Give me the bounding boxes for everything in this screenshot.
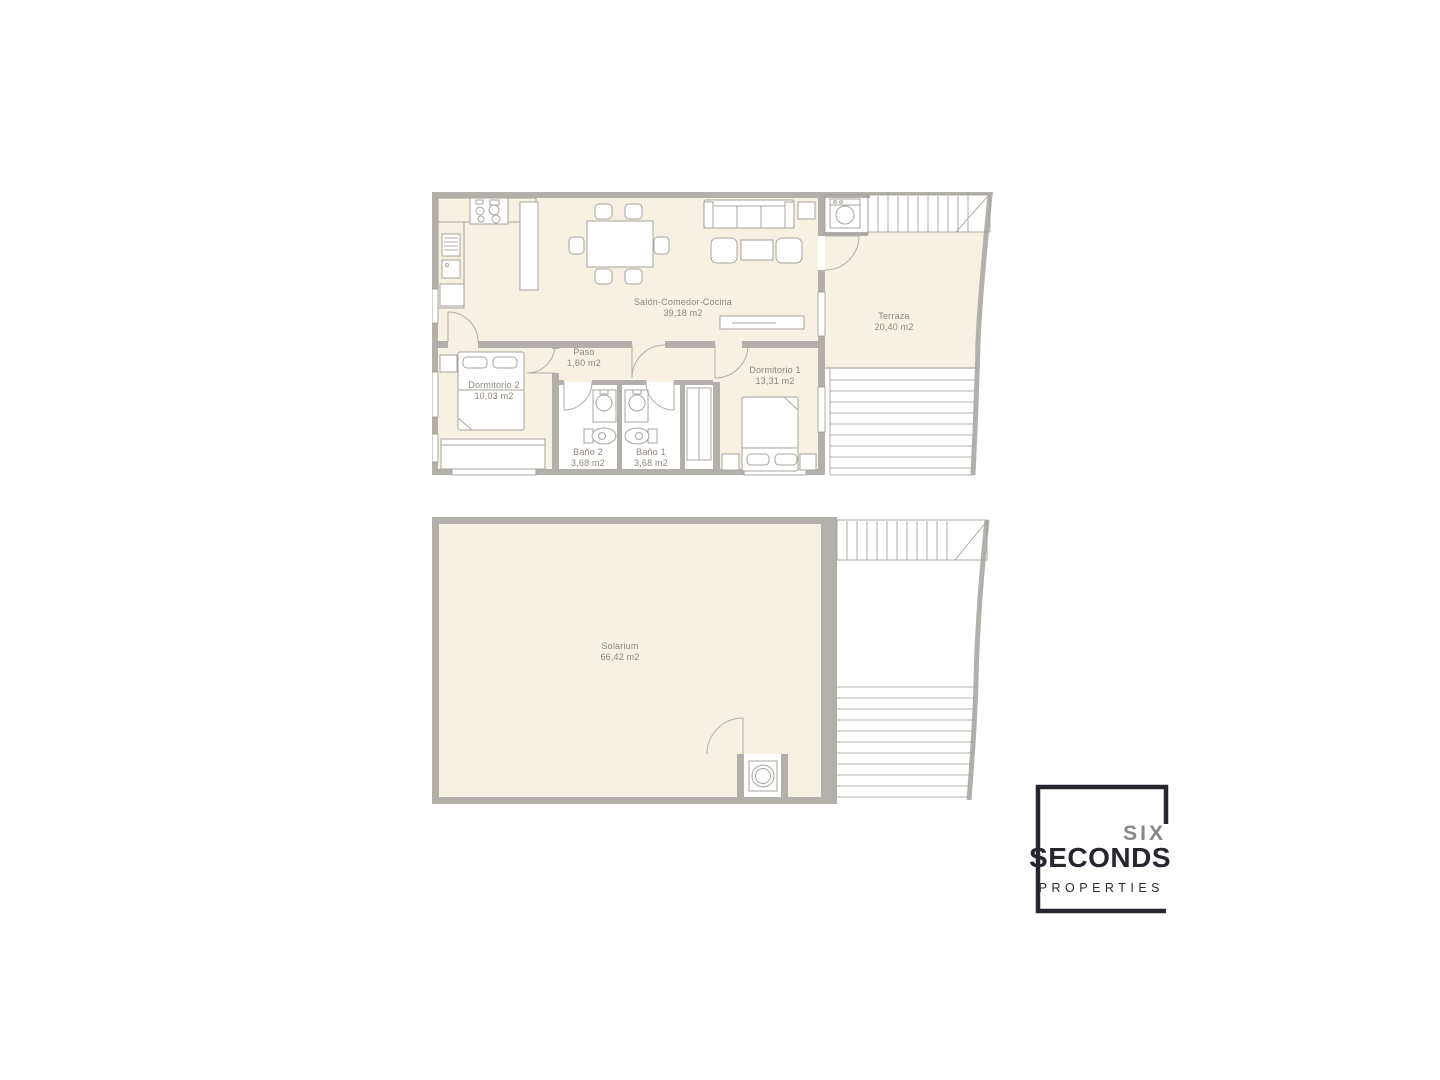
coffee-table <box>741 240 773 260</box>
stairs-top <box>837 520 987 560</box>
label-dormitorio2: Dormitorio 2 10,03 m2 <box>468 380 519 401</box>
label-dormitorio1: Dormitorio 1 13,31 m2 <box>749 365 800 386</box>
floor-plan-upper: Salón-Comedor-Cocina 39,18 m2 Paso 1,60 … <box>432 192 1000 482</box>
bed-icon <box>742 397 798 471</box>
bano1-area: 3,68 m2 <box>634 458 668 468</box>
brand-logo: SIX SECONDS PROPERTIES <box>1035 783 1169 915</box>
sink-icon <box>442 234 460 256</box>
closet <box>441 439 545 469</box>
solarium-area: 66,42 m2 <box>600 652 639 662</box>
dormitorio2-name: Dormitorio 2 <box>468 380 519 390</box>
nightstand <box>440 355 457 372</box>
side-table <box>798 202 815 219</box>
dormitorio2-area: 10,03 m2 <box>474 391 513 401</box>
tv-unit <box>720 316 804 329</box>
dormitorio1-area: 13,31 m2 <box>755 376 794 386</box>
logo-word-seconds: SECONDS <box>1029 842 1171 874</box>
bano2-area: 3,68 m2 <box>571 458 605 468</box>
bano1-name: Baño 1 <box>636 447 666 457</box>
kitchen-island <box>520 202 538 290</box>
curved-exterior-wall <box>969 520 987 800</box>
solarium-name: Solarium <box>601 641 638 651</box>
nightstand <box>722 454 739 470</box>
label-bano1: Baño 1 3,68 m2 <box>634 447 668 468</box>
floor-plan-page: Salón-Comedor-Cocina 39,18 m2 Paso 1,60 … <box>0 0 1440 1080</box>
dormitorio1-name: Dormitorio 1 <box>749 365 800 375</box>
armchair-icon <box>711 238 737 263</box>
armchair-icon <box>776 238 802 263</box>
nightstand <box>800 454 816 470</box>
salon-name: Salón-Comedor-Cocina <box>634 297 732 307</box>
stairs-bottom <box>837 687 976 797</box>
bano2-name: Baño 2 <box>573 447 603 457</box>
paso-name: Paso <box>573 347 594 357</box>
terraza-name: Terraza <box>878 311 909 321</box>
label-solarium: Solarium 66,42 m2 <box>600 641 639 662</box>
label-terraza: Terraza 20,40 m2 <box>874 311 913 332</box>
terraza-area: 20,40 m2 <box>874 322 913 332</box>
salon-area: 39,18 m2 <box>663 308 702 318</box>
floor-plan-lower: Solarium 66,42 m2 <box>432 517 1000 807</box>
logo-word-properties: PROPERTIES <box>1039 881 1164 895</box>
label-bano2: Baño 2 3,68 m2 <box>571 447 605 468</box>
sofa-icon <box>704 200 794 228</box>
paso-area: 1,60 m2 <box>567 358 601 368</box>
